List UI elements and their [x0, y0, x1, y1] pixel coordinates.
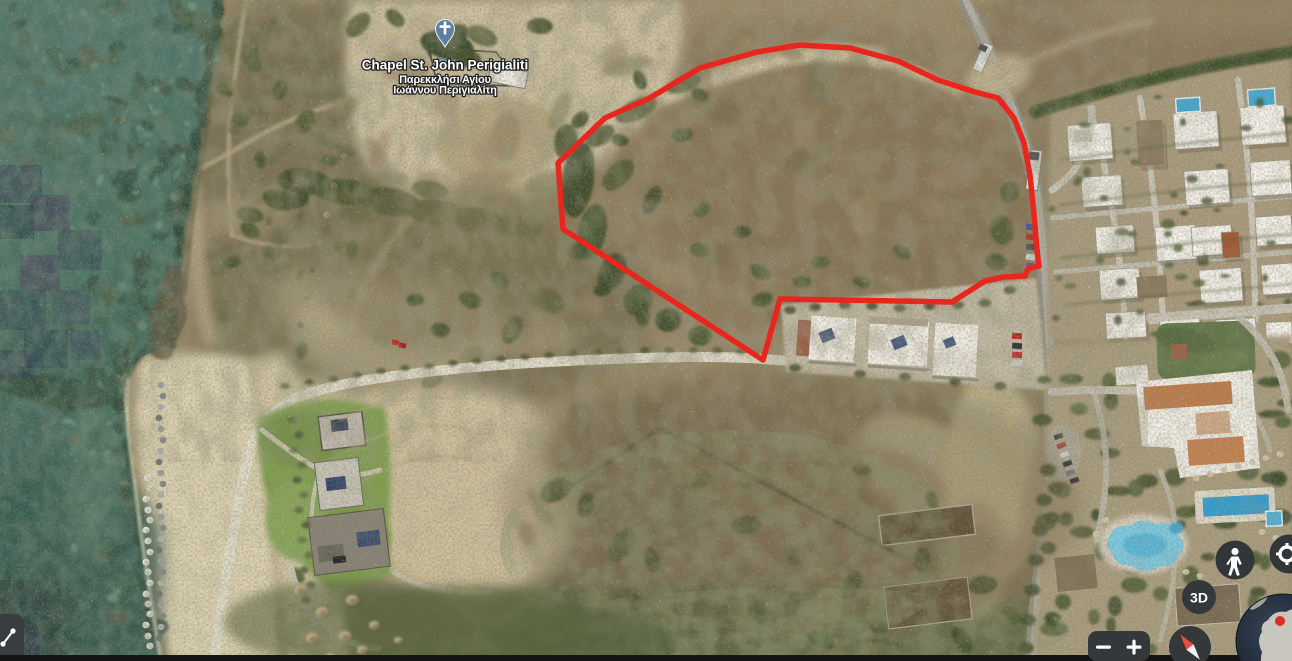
svg-text:Ιωάννου Περιγιαλίτη: Ιωάννου Περιγιαλίτη: [393, 85, 496, 97]
svg-text:Chapel St. John Perigialiti: Chapel St. John Perigialiti: [362, 58, 529, 73]
svg-text:3D: 3D: [1190, 590, 1208, 606]
